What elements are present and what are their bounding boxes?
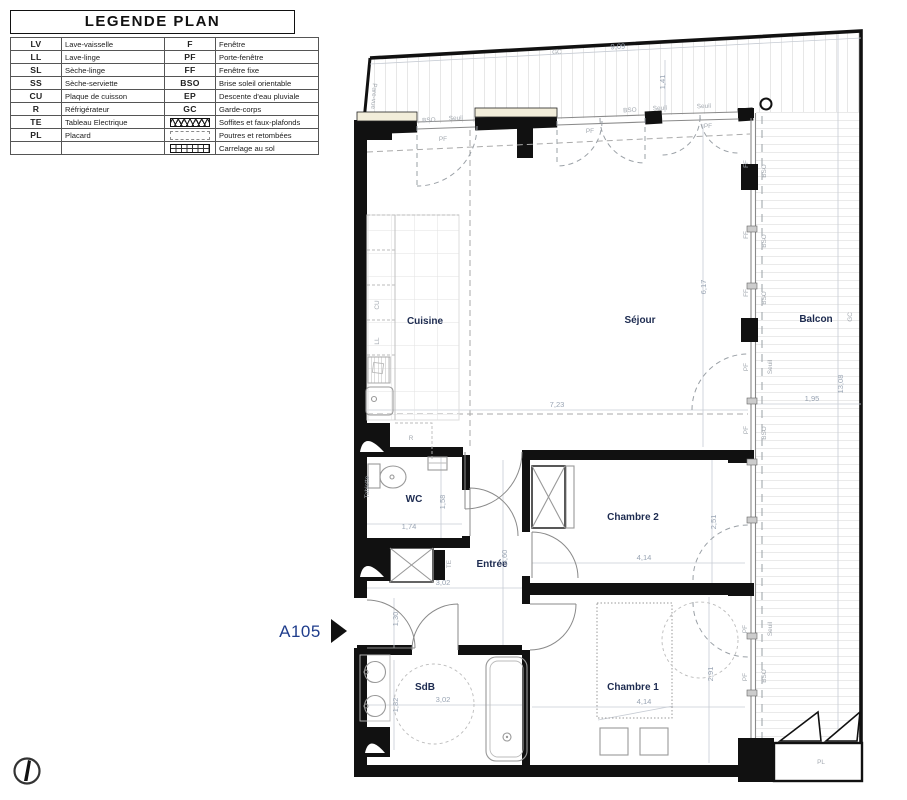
window-door-swings xyxy=(417,115,748,657)
annotation-label: PF xyxy=(742,673,749,681)
dimension-label: 2,91 xyxy=(706,667,715,682)
annotation-label: Seuil xyxy=(697,103,712,111)
room-label: Cuisine xyxy=(407,316,444,327)
dimension-label: 1,58 xyxy=(438,495,447,510)
annotation-label: R xyxy=(409,435,414,442)
wc-fixtures xyxy=(368,457,447,488)
dimension-label: 2,51 xyxy=(709,515,718,530)
dimension-label: 1,41 xyxy=(658,75,667,90)
annotation-label: PF xyxy=(742,625,749,633)
annotation-label: BSO xyxy=(761,426,768,440)
entrance-arrow-icon xyxy=(331,619,347,643)
annotation-label: PF xyxy=(743,363,750,371)
annotation-label: PF xyxy=(586,128,594,135)
dimension-label: 1,82 xyxy=(391,698,400,713)
annotation-label: BSO xyxy=(623,107,637,115)
annotation-label: TE xyxy=(446,560,453,568)
dimension-label: 9,09 xyxy=(610,42,625,52)
room-label: WC xyxy=(406,494,423,505)
annotation-label: Tablette xyxy=(364,475,371,498)
room-label: Balcon xyxy=(799,314,832,325)
floor-plan-page: { "colors":{"wall":"#111111","room_label… xyxy=(0,0,907,800)
annotation-label: BSO xyxy=(761,669,768,683)
annotation-label: Seuil xyxy=(449,115,464,123)
dimension-label: 3,02 xyxy=(436,695,451,704)
annotation-label: PF xyxy=(704,123,712,130)
dimension-label: 6,17 xyxy=(699,280,708,295)
annotation-label: BSO xyxy=(761,164,768,178)
annotation-label: FF xyxy=(743,231,750,239)
dimension-label: 4,14 xyxy=(637,697,652,706)
room-label: Chambre 2 xyxy=(607,512,659,523)
annotation-label: Seuil xyxy=(767,360,774,374)
annotation-label: GC xyxy=(552,49,562,57)
floor-plan-drawing: A105 CuisineSéjourBalconWCEntréeChambre … xyxy=(0,0,907,800)
dimension-label: 13,08 xyxy=(836,374,845,393)
annotation-label: PL xyxy=(817,759,825,766)
unit-label: A105 xyxy=(279,622,321,641)
annotation-label: CU xyxy=(374,300,381,310)
dimension-label: 1,74 xyxy=(402,522,417,531)
room-label: SdB xyxy=(415,682,435,693)
annotation-label: PF xyxy=(439,136,447,143)
annotation-label: BSO xyxy=(422,117,436,125)
dimension-label: 3,02 xyxy=(436,578,451,587)
annotation-label: FF xyxy=(743,160,750,168)
bedroom-furniture xyxy=(597,602,738,755)
room-label: Chambre 1 xyxy=(607,682,659,693)
dimension-label: 4,14 xyxy=(637,553,652,562)
dimension-label: 7,23 xyxy=(550,400,565,409)
annotation-label: BSO xyxy=(761,291,768,305)
annotation-label: Seuil xyxy=(653,105,668,113)
unit-label-group: A105 xyxy=(279,619,347,643)
annotation-label: FF xyxy=(743,289,750,297)
north-indicator-icon xyxy=(15,759,40,784)
dimension-label: 1,30 xyxy=(391,612,400,627)
dimension-label: 3,60 xyxy=(500,550,509,565)
annotation-label: GC xyxy=(847,312,854,322)
room-label: Séjour xyxy=(624,315,655,326)
annotation-label: BSO xyxy=(761,234,768,248)
annotation-label: PF xyxy=(743,426,750,434)
annotation-label: LL xyxy=(374,337,381,345)
annotation-label: Seuil xyxy=(767,622,774,636)
dimension-label: 1,95 xyxy=(805,394,820,403)
